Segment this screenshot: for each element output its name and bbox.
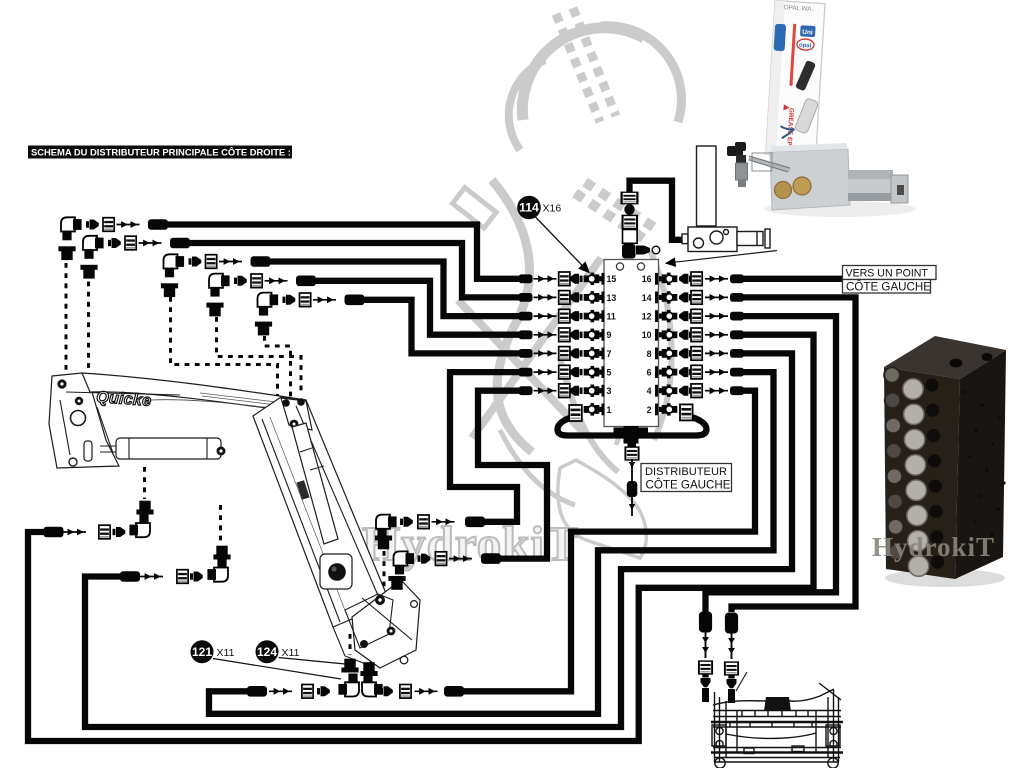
svg-text:2: 2 [647, 405, 652, 415]
svg-text:5: 5 [607, 367, 612, 377]
svg-text:121: 121 [192, 645, 212, 659]
svg-text:HydrokiT: HydrokiT [872, 532, 995, 562]
svg-text:Uni: Uni [802, 29, 813, 37]
svg-text:X16: X16 [543, 203, 562, 215]
svg-text:6: 6 [647, 367, 652, 377]
svg-text:3: 3 [607, 386, 612, 396]
svg-text:15: 15 [607, 274, 617, 284]
svg-text:8: 8 [647, 349, 652, 359]
svg-text:X11: X11 [217, 647, 235, 659]
svg-text:14: 14 [642, 293, 652, 303]
svg-text:124: 124 [257, 645, 277, 659]
svg-text:10: 10 [642, 330, 652, 340]
svg-text:1: 1 [607, 405, 612, 415]
svg-text:12: 12 [642, 312, 652, 322]
svg-text:CÔTE GAUCHE: CÔTE GAUCHE [846, 281, 931, 294]
svg-text:7: 7 [607, 349, 612, 359]
svg-text:13: 13 [607, 293, 617, 303]
svg-text:SCHEMA DU DISTRIBUTEUR PRINCIP: SCHEMA DU DISTRIBUTEUR PRINCIPALE CÔTE D… [31, 147, 291, 158]
svg-text:9: 9 [607, 330, 612, 340]
svg-text:X11: X11 [282, 647, 300, 659]
svg-text:opal: opal [799, 43, 812, 50]
svg-text:VERS UN POINT: VERS UN POINT [846, 268, 929, 280]
svg-text:CÔTE GAUCHE: CÔTE GAUCHE [646, 478, 731, 491]
svg-text:4: 4 [647, 386, 652, 396]
svg-text:16: 16 [642, 274, 652, 284]
svg-text:114: 114 [519, 201, 539, 215]
svg-text:11: 11 [607, 312, 616, 322]
svg-text:DISTRIBUTEUR: DISTRIBUTEUR [645, 466, 727, 478]
